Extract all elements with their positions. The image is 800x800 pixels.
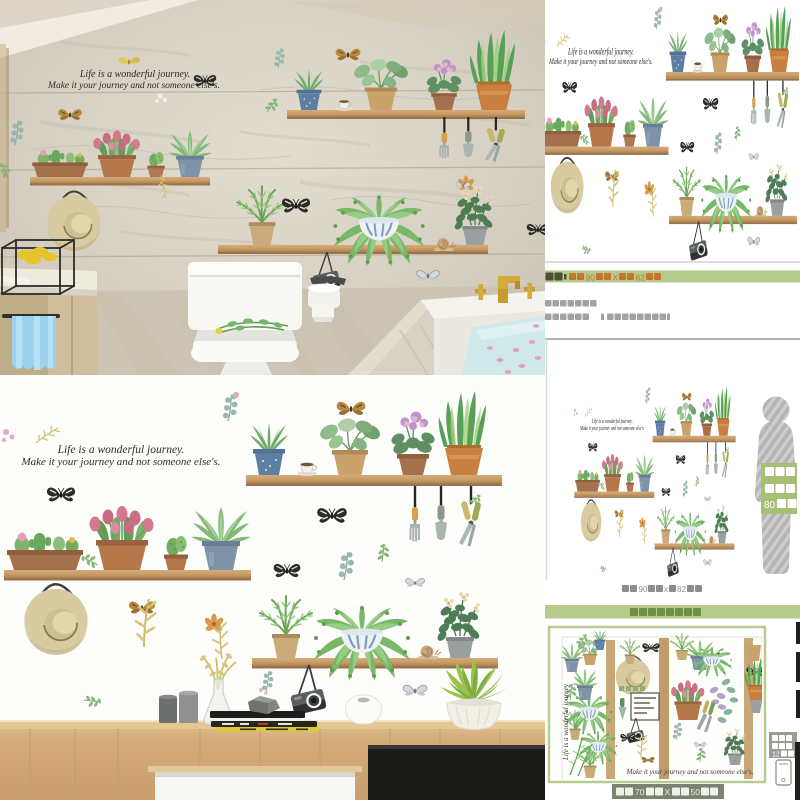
svg-text:82: 82 — [677, 585, 686, 594]
svg-text:Life is a wonderful journey: Life is a wonderful journey — [562, 683, 570, 761]
svg-text:50: 50 — [691, 787, 701, 797]
svg-text:X: X — [665, 787, 671, 797]
svg-text:x: x — [664, 585, 668, 594]
svg-text:82: 82 — [636, 273, 646, 283]
svg-text:12: 12 — [772, 752, 780, 759]
svg-text:80: 80 — [764, 500, 776, 511]
svg-text:90: 90 — [586, 273, 596, 283]
svg-text:Make it your journey and not s: Make it your journey and not someone els… — [47, 81, 220, 91]
svg-text:Life is a wonderful journey.: Life is a wonderful journey. — [79, 69, 190, 80]
svg-text:70: 70 — [635, 787, 645, 797]
svg-text:X: X — [613, 273, 619, 283]
svg-text:Make it your journey and not s: Make it your journey and not someone els… — [626, 768, 754, 776]
svg-text:90: 90 — [639, 585, 648, 594]
